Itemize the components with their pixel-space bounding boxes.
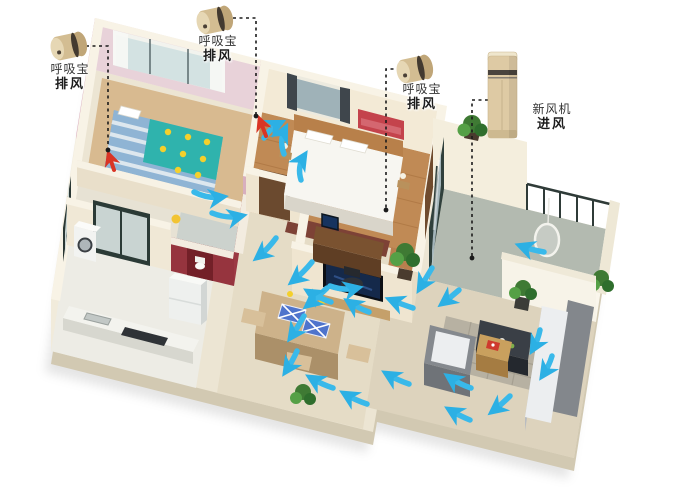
airflow-arrow	[330, 286, 357, 289]
fresh-air-label: 新风机 进风	[520, 102, 584, 131]
exhaust-label-top: 呼吸宝 排风	[186, 34, 250, 63]
fresh-air-label-line1: 新风机	[520, 102, 584, 116]
exhaust-label-left-line1: 呼吸宝	[38, 62, 102, 76]
fridge	[169, 273, 207, 325]
exhaust-label-top-line1: 呼吸宝	[186, 34, 250, 48]
curtain	[113, 30, 128, 69]
exhaust-label-top-line2: 排风	[186, 48, 250, 63]
exhaust-device-icon-top	[194, 4, 235, 36]
dark-curtain	[287, 73, 297, 111]
fresh-air-label-line2: 进风	[520, 116, 584, 131]
exhaust-device-icon-left	[48, 30, 89, 62]
dark-curtain	[340, 87, 350, 124]
floor-plan-illustration	[0, 0, 700, 496]
exhaust-device-icon-right	[394, 53, 435, 85]
fresh-air-unit-icon	[488, 52, 517, 138]
ventilation-floorplan-diagram: 呼吸宝 排风 呼吸宝 排风 呼吸宝 排风 新风机 进风	[0, 0, 700, 496]
exhaust-label-left-line2: 排风	[38, 76, 102, 91]
exhaust-label-right-line1: 呼吸宝	[390, 82, 454, 96]
exhaust-label-right: 呼吸宝 排风	[390, 82, 454, 111]
hammock-chair	[535, 198, 559, 256]
exhaust-label-left: 呼吸宝 排风	[38, 62, 102, 91]
toy	[172, 215, 181, 224]
exhaust-label-right-line2: 排风	[390, 96, 454, 111]
